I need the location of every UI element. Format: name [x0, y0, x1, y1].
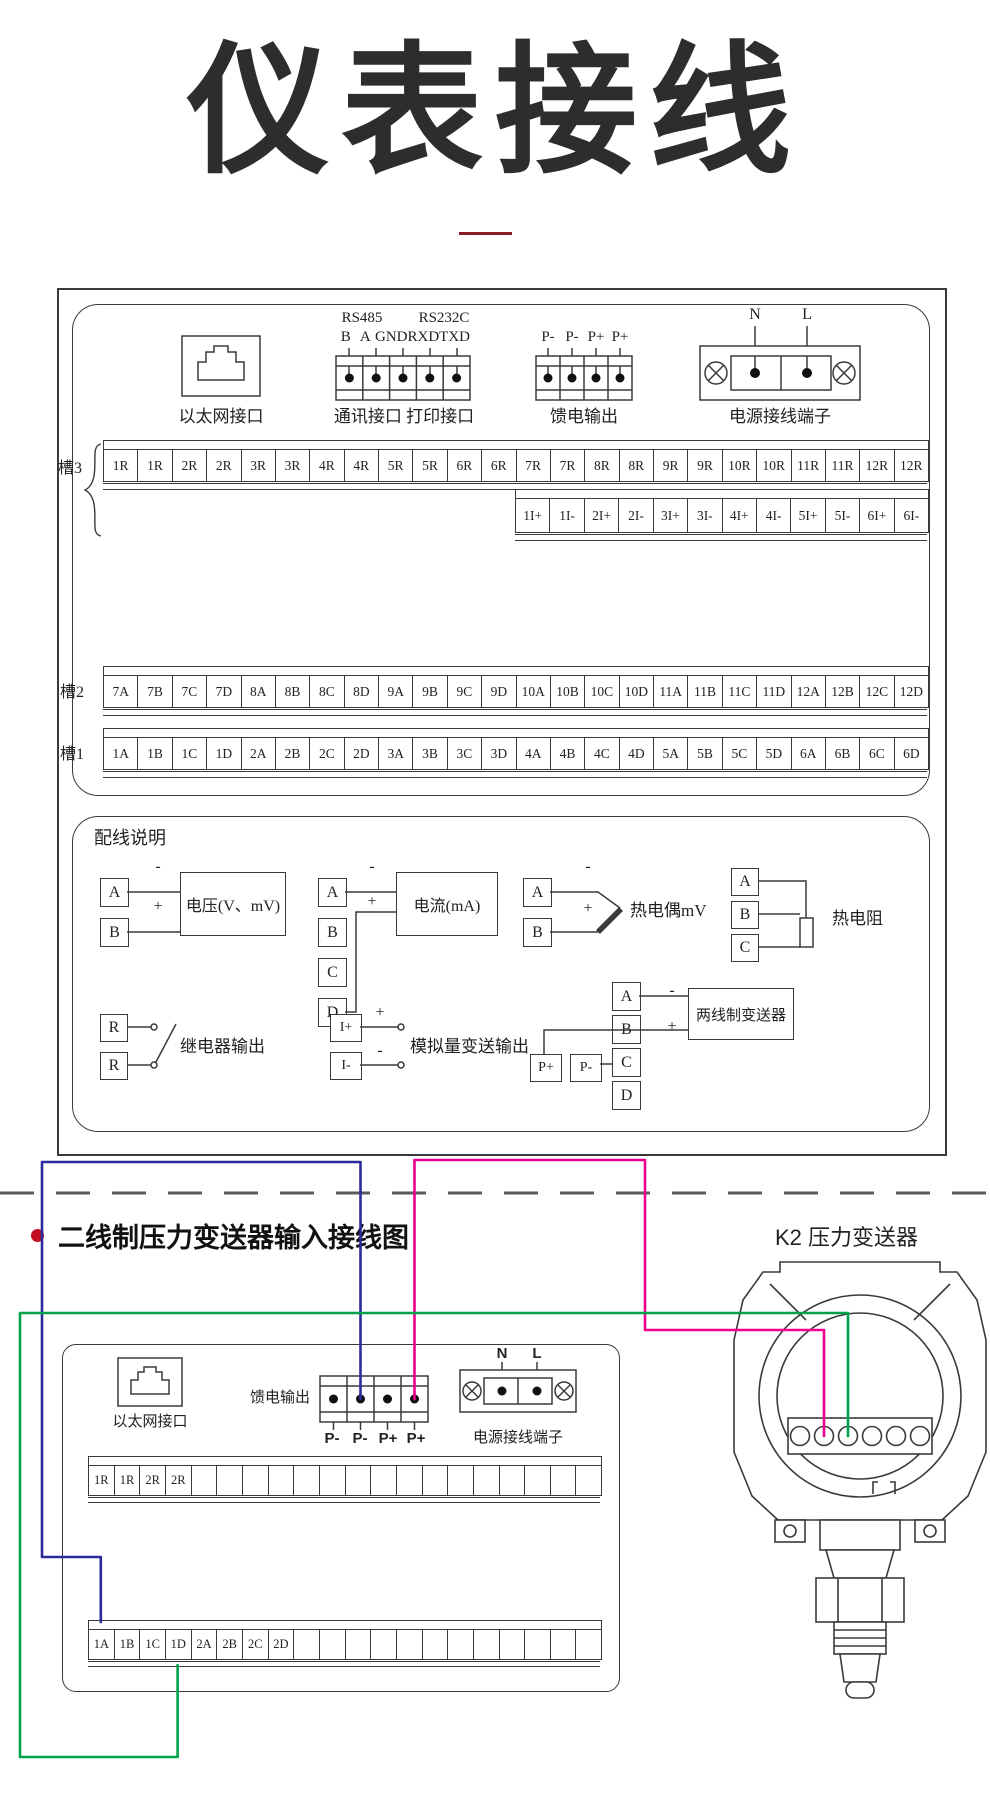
current-wires	[345, 892, 396, 1012]
comm-port-icon	[336, 348, 470, 400]
power-terminal-icon	[460, 1362, 576, 1412]
feed-output-icon	[536, 348, 632, 400]
slot3-brace	[85, 444, 101, 536]
ethernet-port-icon	[182, 336, 260, 396]
voltage-wires	[127, 892, 180, 932]
feed-output-icon	[320, 1376, 428, 1430]
relay-contact	[127, 1024, 176, 1068]
power-terminal-icon	[700, 326, 860, 400]
thermocouple-wires	[550, 892, 621, 932]
two-wire-wires	[544, 996, 688, 1064]
pressure-transmitter-icon	[734, 1262, 986, 1698]
diagram-linework	[0, 0, 990, 1798]
ethernet-port-icon	[118, 1358, 182, 1406]
rtd-wires	[758, 881, 813, 947]
wire-blue	[42, 1162, 361, 1622]
wiring-diagram-page: 仪表接线 以太网接口 RS485 RS232C BAGNDRXDTXD 通讯接口…	[0, 0, 990, 1798]
analog-out-wires	[360, 1024, 404, 1068]
